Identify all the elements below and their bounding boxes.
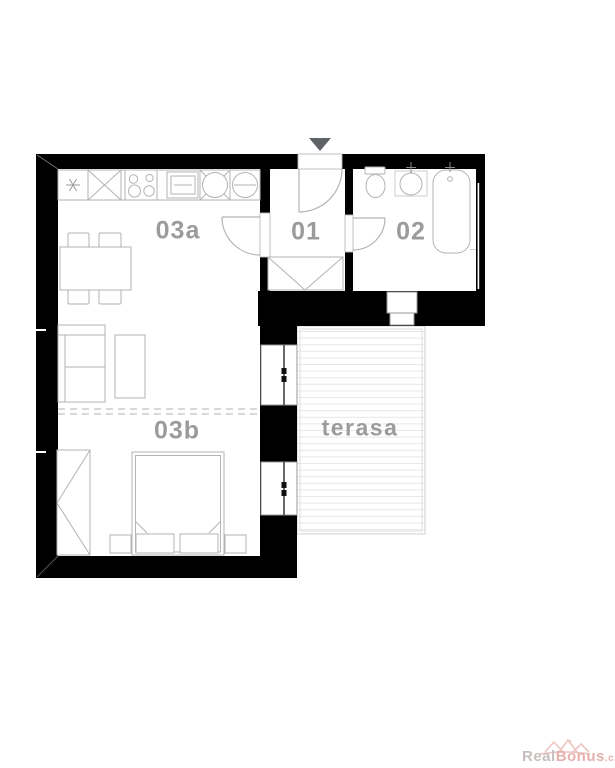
dining-table [60, 247, 131, 290]
sink-symbol-icon [200, 170, 230, 200]
bathroom-window [387, 292, 417, 325]
room-label-hall: 01 [291, 218, 321, 247]
room-divider-dashed-line [58, 409, 260, 414]
wall-hall-left-upper [260, 169, 270, 213]
wall-top-left [36, 154, 298, 169]
bedroom-furniture [57, 450, 246, 555]
floorplan-canvas: 03a 01 02 03b terasa RealBonus.cz [0, 0, 615, 768]
terrace-window-2 [261, 462, 297, 515]
entrance-door-opening [298, 154, 342, 169]
window-handle [282, 482, 287, 488]
room-label-bathroom: 02 [396, 218, 426, 247]
wall-hall-bath-lower [345, 252, 353, 291]
room-label-terrace: terasa [322, 415, 399, 442]
right-wall-window-line [478, 183, 480, 289]
side-table [115, 335, 145, 398]
wardrobe [57, 450, 90, 555]
chair [99, 290, 121, 304]
toilet-symbol-icon [365, 167, 385, 198]
floorplan-drawing [0, 0, 615, 768]
window-handle [282, 490, 287, 496]
entrance-arrow-icon [309, 138, 331, 151]
wall-bottom [36, 556, 297, 578]
chair [99, 233, 121, 247]
chair [68, 233, 89, 247]
nightstand [110, 535, 131, 553]
room-label-bedroom: 03b [154, 417, 200, 446]
terrace-window-1 [261, 345, 297, 405]
watermark-text: RealBonus.cz [522, 748, 615, 765]
wall-joint-tick [36, 329, 46, 331]
bathtub-symbol-icon [433, 162, 476, 253]
watermark-brand-primary: Real [522, 748, 556, 765]
dining-set [60, 233, 131, 304]
wall-joint-tick [36, 451, 46, 453]
window-sill [390, 313, 414, 325]
nightstand [225, 535, 246, 553]
living-door-opening [260, 213, 270, 257]
hall-closet [268, 257, 343, 290]
kitchen-counter [58, 170, 260, 200]
room-label-living-kitchen: 03a [156, 217, 201, 246]
living-door-swing [222, 217, 260, 255]
watermark-brand-secondary: Bonus [556, 748, 605, 765]
window-handle [282, 368, 287, 374]
sofa-group [58, 325, 145, 402]
wall-band-below-hall-bath [258, 291, 485, 326]
entrance-door-swing [299, 169, 342, 212]
wall-top-right [342, 154, 485, 169]
watermark: RealBonus.cz [518, 732, 613, 766]
chair [68, 290, 89, 304]
pillow [180, 534, 218, 553]
wall-left [36, 154, 58, 578]
bathroom-door-opening [345, 215, 353, 252]
bathroom-door-swing [353, 218, 385, 250]
watermark-brand-suffix: .cz [605, 753, 615, 764]
window-handle [282, 376, 287, 382]
wall-hall-bath-upper [345, 169, 353, 215]
bed [132, 452, 224, 555]
pillow [136, 534, 174, 553]
